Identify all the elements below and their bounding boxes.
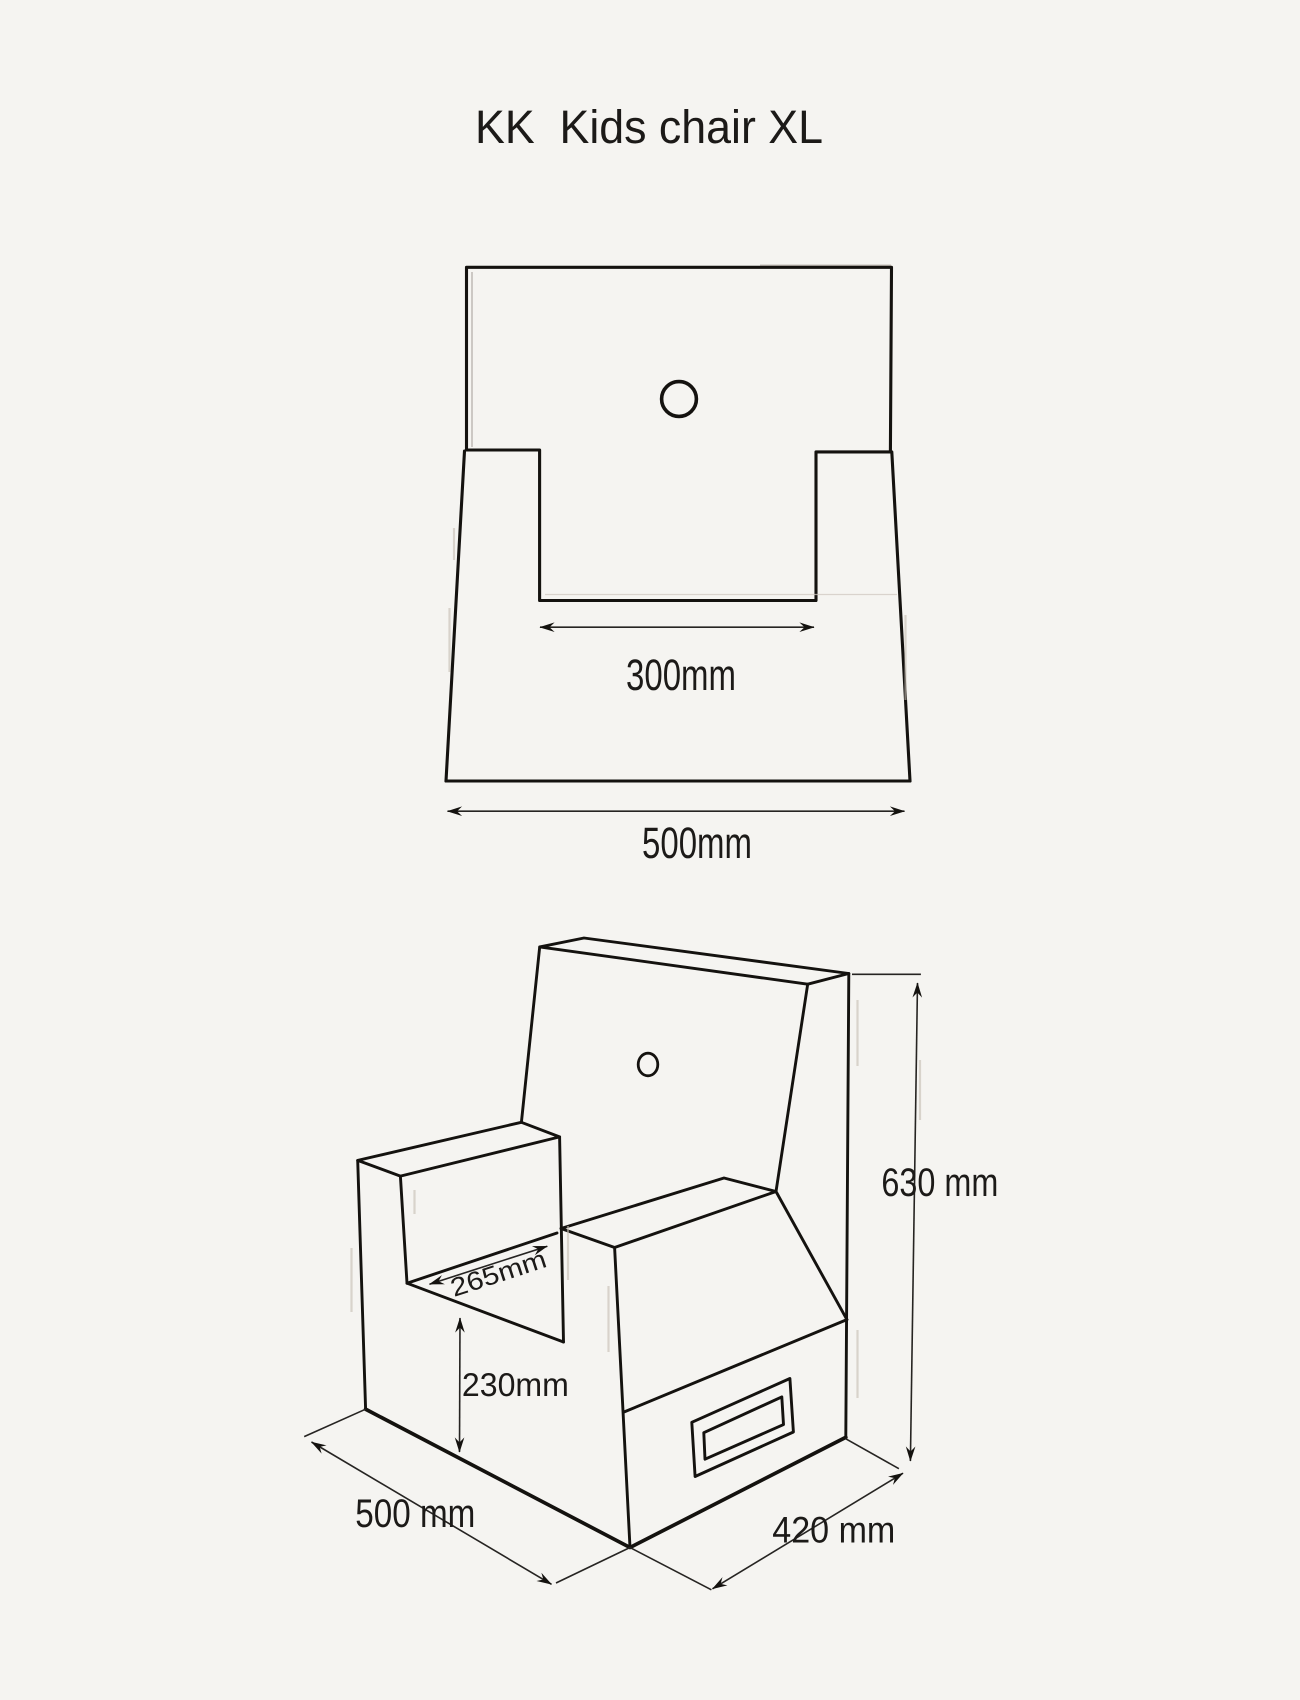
- svg-text:500mm: 500mm: [642, 819, 752, 868]
- svg-text:630 mm: 630 mm: [881, 1161, 998, 1205]
- svg-text:230mm: 230mm: [462, 1366, 569, 1403]
- svg-text:500 mm: 500 mm: [355, 1492, 475, 1536]
- svg-text:420 mm: 420 mm: [772, 1510, 895, 1551]
- svg-text:300mm: 300mm: [626, 651, 736, 700]
- svg-text:KK Kids chair XL: KK Kids chair XL: [475, 100, 823, 153]
